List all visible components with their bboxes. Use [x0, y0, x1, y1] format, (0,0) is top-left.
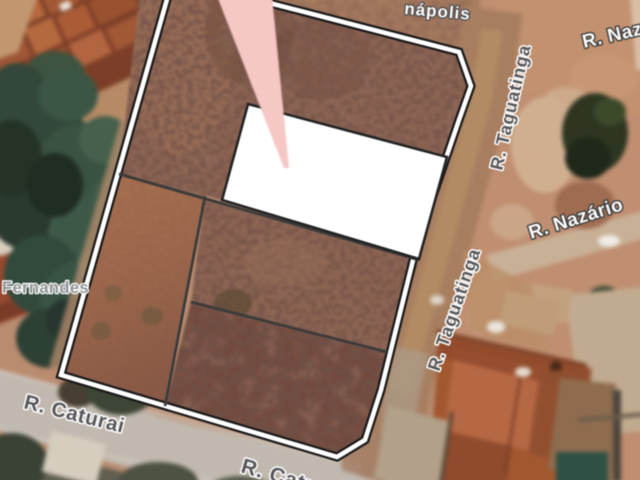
svg-text:Fernandes: Fernandes — [2, 279, 89, 297]
